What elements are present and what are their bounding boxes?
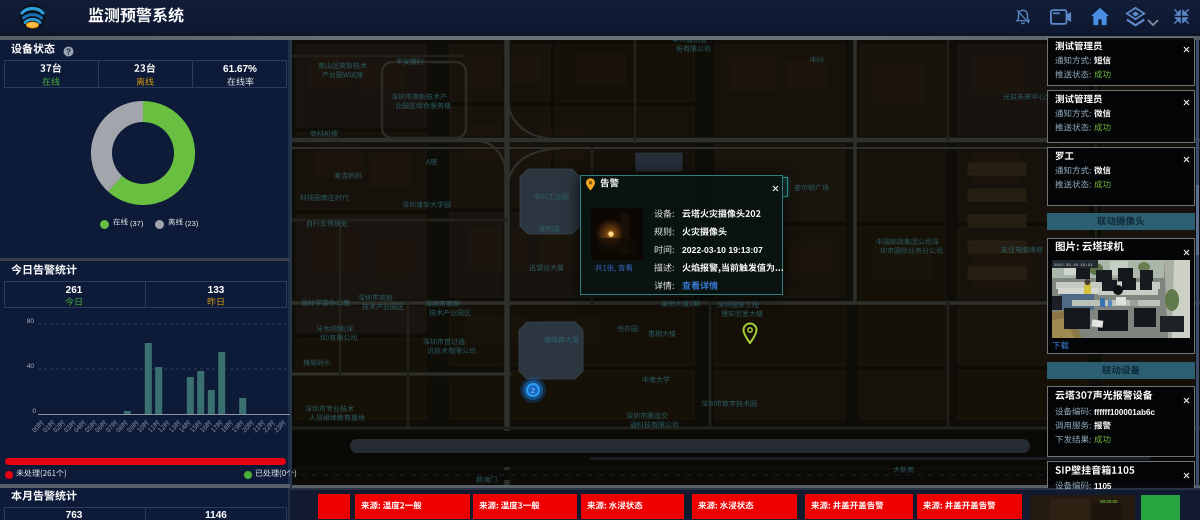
- svg-text:2: 2: [531, 386, 535, 395]
- svg-text:00:00:00: 00:00:00: [1100, 499, 1118, 504]
- svg-text:2022-03-10 19:13: 2022-03-10 19:13: [1054, 264, 1093, 268]
- svg-text:?: ?: [66, 47, 71, 56]
